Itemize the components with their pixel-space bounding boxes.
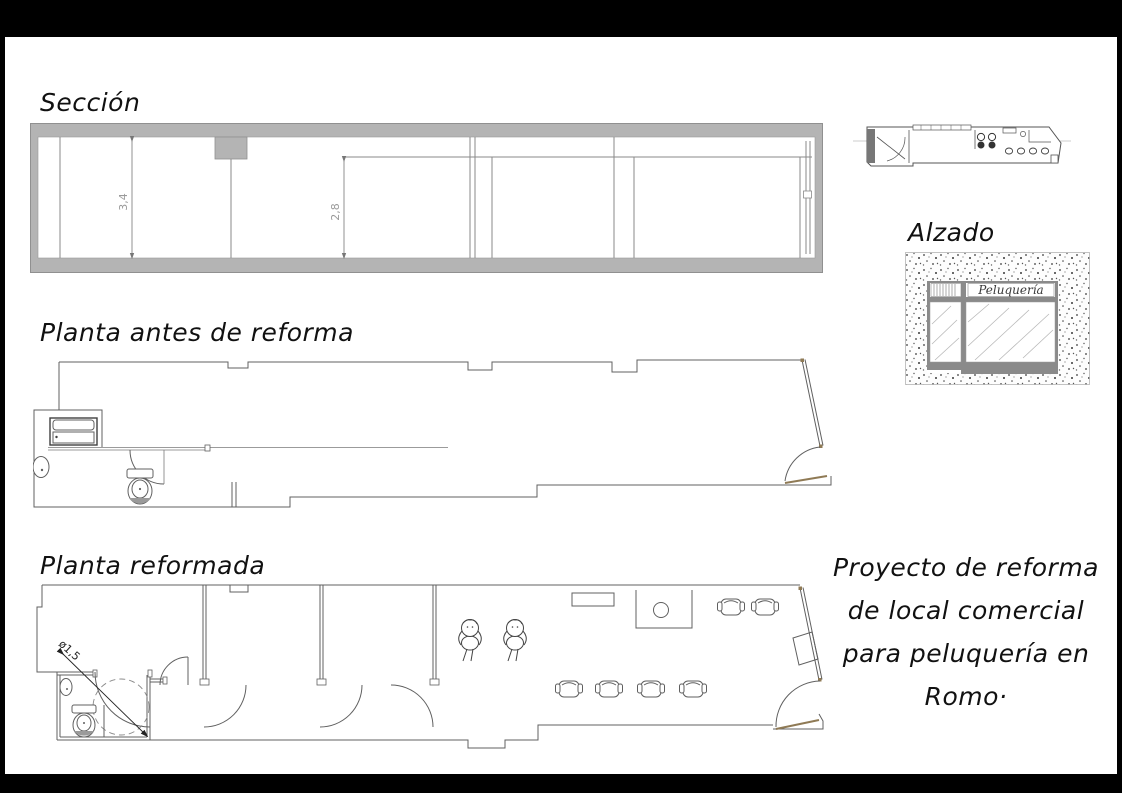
reception-desk — [636, 590, 692, 628]
room2-door-arc — [320, 685, 362, 727]
door-jamb — [205, 445, 210, 451]
sign-text: Peluquería — [977, 283, 1043, 297]
shelf-unit — [572, 593, 614, 606]
plan-after-title: Planta reformada — [40, 551, 265, 580]
elevation-title: Alzado — [908, 218, 995, 247]
dim-label-ceiling-height: 2,8 — [329, 203, 342, 221]
mini-key-plan — [853, 117, 1071, 173]
drawing-sheet: Sección 3,4 2,8 — [0, 0, 1122, 793]
partition-walls — [200, 585, 439, 685]
dim-label-total-height: 3,4 — [117, 193, 130, 211]
section-interior — [38, 137, 815, 258]
entry-door-leaf — [776, 720, 819, 729]
salon-chair — [556, 681, 583, 697]
section-beam — [215, 137, 247, 159]
project-note-line: de local comercial — [820, 589, 1112, 632]
room3-door-arc — [391, 685, 433, 727]
stool — [654, 603, 669, 618]
room1-door-arc — [204, 685, 246, 727]
section-title: Sección — [40, 88, 140, 117]
entry-door-arc — [776, 681, 820, 727]
plan-after-outline — [37, 585, 823, 748]
display-unit — [793, 632, 818, 665]
salon-chair — [638, 681, 665, 697]
bathroom-sink-icon — [60, 679, 72, 696]
glass-door — [930, 302, 961, 362]
fridge-icon — [50, 418, 97, 445]
plan-after-drawing: ø1,5 — [33, 581, 833, 751]
project-note: Proyecto de reforma de local comercial p… — [820, 546, 1112, 718]
elevation-drawing: Peluquería — [905, 252, 1090, 385]
person-figure — [504, 620, 527, 662]
salon-chair — [718, 599, 745, 615]
bathroom-door-arc — [95, 672, 150, 727]
salon-chair — [680, 681, 707, 697]
turning-circle-dim-label: ø1,5 — [56, 637, 83, 663]
salon-chair — [752, 599, 779, 615]
shutter-box — [931, 284, 961, 297]
project-note-line: Romo· — [820, 675, 1112, 718]
toilet-icon — [127, 469, 153, 504]
entry-door-leaf — [785, 476, 827, 483]
storefront-window-line — [802, 360, 820, 446]
section-drawing: 3,4 2,8 — [30, 121, 823, 274]
turning-circle — [93, 679, 149, 735]
glass-window — [966, 302, 1055, 362]
mini-outline — [867, 127, 1061, 166]
window-knob — [804, 191, 812, 198]
salon-chair — [596, 681, 623, 697]
plan-before-drawing — [33, 348, 833, 514]
entry-door-arc — [785, 447, 820, 481]
storefront-window-line — [800, 588, 819, 680]
person-figure — [459, 620, 482, 662]
sink-icon — [33, 457, 49, 478]
mini-left-wall — [867, 129, 875, 163]
plan-before-title: Planta antes de reforma — [40, 318, 354, 347]
project-note-line: Proyecto de reforma — [820, 546, 1112, 589]
plan-before-outline — [34, 360, 831, 507]
project-note-line: para peluquería en — [820, 632, 1112, 675]
bathroom-toilet-icon — [72, 705, 96, 737]
